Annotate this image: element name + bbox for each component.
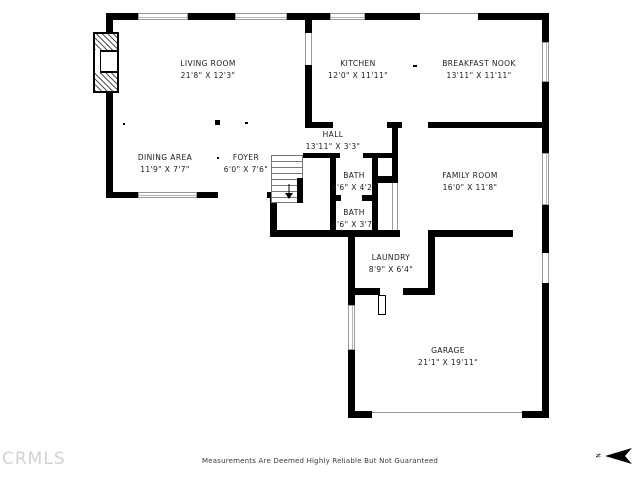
room-dims: 8'9" X 6'4" (369, 264, 413, 276)
room-name: KITCHEN (328, 58, 388, 70)
room-dims: 6'0" X 7'6" (224, 164, 268, 176)
room-label-living-room: LIVING ROOM 21'8" X 12'3" (180, 58, 235, 82)
fireplace (93, 32, 119, 93)
opening-tick (215, 120, 220, 125)
door-opening (542, 253, 543, 283)
room-name: BREAKFAST NOOK (442, 58, 516, 70)
wall-segment (330, 195, 341, 201)
room-name: DINING AREA (138, 152, 192, 164)
firebox (100, 50, 117, 73)
room-label-garage: GARAGE 21'1" X 19'11" (418, 345, 478, 369)
north-letter: N (594, 453, 601, 458)
wall-segment (305, 65, 312, 122)
cased-opening (311, 33, 312, 65)
room-dims: 13'11" X 3'3" (306, 141, 361, 153)
wall-segment (428, 230, 513, 237)
cased-opening (397, 183, 398, 230)
north-arrow-icon: N (592, 444, 634, 466)
wall-segment (403, 288, 435, 295)
window (348, 305, 355, 350)
garage-door (372, 412, 522, 413)
wall-segment (287, 13, 330, 20)
wall-segment (365, 13, 420, 20)
stair-direction-arrow (283, 183, 295, 201)
wall-segment (106, 20, 113, 32)
wall-segment (348, 237, 355, 288)
wall-segment (542, 283, 549, 418)
window (138, 13, 188, 20)
room-label-foyer: FOYER 6'0" X 7'6" (224, 152, 268, 176)
room-name: GARAGE (418, 345, 478, 357)
room-label-bath-lower: BATH 4'6" X 3'7" (332, 207, 376, 231)
room-name: FAMILY ROOM (442, 170, 497, 182)
door-leaf (378, 295, 386, 315)
room-name: LAUNDRY (369, 252, 413, 264)
floorplan-canvas: LIVING ROOM 21'8" X 12'3" KITCHEN 12'0" … (0, 0, 640, 480)
room-label-hall: HALL 13'11" X 3'3" (306, 129, 361, 153)
wall-segment (478, 13, 549, 20)
cased-opening (305, 33, 306, 65)
window (235, 13, 287, 20)
wall-segment (270, 230, 400, 237)
wall-segment (542, 205, 549, 253)
cased-opening (392, 183, 393, 230)
sliding-door-opening (420, 13, 478, 14)
room-label-kitchen: KITCHEN 12'0" X 11'11" (328, 58, 388, 82)
wall-segment (188, 13, 235, 20)
room-label-laundry: LAUNDRY 8'9" X 6'4" (369, 252, 413, 276)
wall-segment (392, 125, 398, 183)
wall-segment (522, 411, 549, 418)
room-dims: 16'0" X 11'8" (442, 182, 497, 194)
fireplace-hatch (95, 73, 117, 91)
window (330, 13, 365, 20)
wall-segment (542, 20, 549, 42)
wall-segment (305, 122, 333, 128)
wall-segment (106, 192, 138, 198)
wall-segment (348, 411, 372, 418)
room-label-bath-upper: BATH 4'6" X 4'2" (332, 170, 376, 194)
wall-segment (542, 82, 549, 153)
wall-segment (348, 288, 380, 295)
fireplace-hatch (95, 34, 117, 50)
north-arrow-glyph (604, 446, 634, 466)
room-dims: 4'6" X 3'7" (332, 219, 376, 231)
disclaimer-text: Measurements Are Deemed Highly Reliable … (0, 457, 640, 465)
room-label-breakfast-nook: BREAKFAST NOOK 13'11" X 11'11" (442, 58, 516, 82)
door-opening (548, 253, 549, 283)
room-name: BATH (332, 170, 376, 182)
room-name: LIVING ROOM (180, 58, 235, 70)
room-name: HALL (306, 129, 361, 141)
opening-tick (245, 122, 248, 124)
wall-segment (197, 192, 218, 198)
room-dims: 21'8" X 12'3" (180, 70, 235, 82)
wall-segment (348, 295, 355, 305)
opening-tick (217, 157, 219, 159)
room-name: BATH (332, 207, 376, 219)
room-dims: 12'0" X 11'11" (328, 70, 388, 82)
room-label-family-room: FAMILY ROOM 16'0" X 11'8" (442, 170, 497, 194)
wall-segment (428, 230, 435, 295)
room-dims: 21'1" X 19'11" (418, 357, 478, 369)
opening-tick (413, 65, 417, 67)
window (542, 153, 549, 205)
wall-segment (348, 350, 355, 411)
window (138, 192, 197, 198)
wall-segment (428, 122, 549, 128)
room-dims: 4'6" X 4'2" (332, 182, 376, 194)
opening-tick (123, 123, 125, 125)
wall-segment (106, 93, 113, 192)
room-dims: 11'9" X 7'7" (138, 164, 192, 176)
wall-segment (305, 20, 312, 33)
room-dims: 13'11" X 11'11" (442, 70, 516, 82)
room-name: FOYER (224, 152, 268, 164)
wall-segment (297, 178, 303, 203)
room-label-dining-area: DINING AREA 11'9" X 7'7" (138, 152, 192, 176)
wall-segment (106, 13, 138, 20)
window (542, 42, 549, 82)
wall-segment (362, 195, 378, 201)
